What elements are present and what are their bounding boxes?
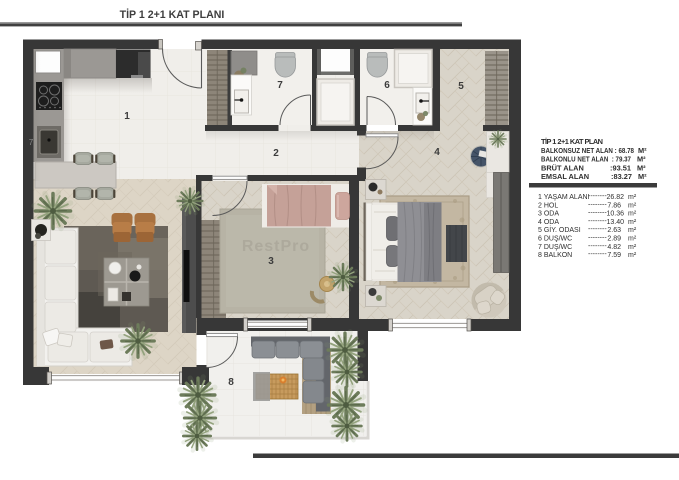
svg-text:--------: -------- bbox=[588, 218, 607, 225]
svg-text:TİP 1 2+1 KAT PLANI: TİP 1 2+1 KAT PLANI bbox=[120, 8, 225, 21]
svg-text:13.40: 13.40 bbox=[606, 219, 624, 226]
svg-text:m²: m² bbox=[628, 194, 637, 201]
svg-text:M²: M² bbox=[638, 146, 647, 155]
svg-text:--------: -------- bbox=[588, 243, 607, 250]
svg-text:7.86: 7.86 bbox=[607, 202, 621, 209]
svg-text:2: 2 bbox=[273, 148, 279, 159]
svg-text:m²: m² bbox=[628, 236, 637, 243]
svg-text:6 DUŞ/WC: 6 DUŞ/WC bbox=[538, 236, 572, 243]
svg-text:1 YAŞAM ALANI: 1 YAŞAM ALANI bbox=[538, 194, 590, 201]
svg-text:5: 5 bbox=[458, 81, 464, 92]
svg-text:26.82: 26.82 bbox=[606, 194, 624, 201]
svg-text:5 GİY. ODASI: 5 GİY. ODASI bbox=[538, 225, 581, 234]
svg-text:m²: m² bbox=[628, 227, 637, 234]
svg-text:2 HOL: 2 HOL bbox=[538, 202, 558, 209]
svg-text:8: 8 bbox=[228, 377, 234, 388]
svg-text:4: 4 bbox=[434, 147, 440, 158]
svg-text:BALKONLU NET ALAN : 79.37: BALKONLU NET ALAN : 79.37 bbox=[541, 155, 631, 164]
svg-text:BRÜT ALAN: BRÜT ALAN bbox=[541, 163, 584, 172]
svg-text:6: 6 bbox=[384, 80, 390, 91]
svg-text:m²: m² bbox=[628, 252, 637, 259]
svg-text:--------: -------- bbox=[588, 235, 607, 242]
svg-text:7 DUŞ/WC: 7 DUŞ/WC bbox=[538, 244, 572, 251]
svg-text:--------: -------- bbox=[588, 201, 607, 208]
svg-text:BALKONSUZ NET ALAN : 68.78: BALKONSUZ NET ALAN : 68.78 bbox=[541, 146, 634, 155]
svg-text:m²: m² bbox=[628, 211, 637, 218]
svg-text:m²: m² bbox=[628, 219, 637, 226]
svg-text:--------: -------- bbox=[588, 210, 607, 217]
svg-text:8 BALKON: 8 BALKON bbox=[538, 252, 572, 259]
svg-text:3 ODA: 3 ODA bbox=[538, 211, 559, 218]
svg-text::83.27: :83.27 bbox=[611, 172, 632, 181]
svg-text:m²: m² bbox=[628, 202, 637, 209]
svg-text:7.59: 7.59 bbox=[607, 252, 621, 259]
svg-text:1: 1 bbox=[124, 111, 130, 122]
svg-text:TİP 1 2+1 KAT PLAN: TİP 1 2+1 KAT PLAN bbox=[541, 137, 603, 146]
svg-text:m²: m² bbox=[628, 244, 637, 251]
svg-text:M²: M² bbox=[637, 155, 646, 164]
svg-text:7: 7 bbox=[29, 138, 34, 147]
svg-text:3: 3 bbox=[268, 256, 274, 267]
svg-text:--------: -------- bbox=[588, 251, 607, 258]
svg-text:2.89: 2.89 bbox=[607, 236, 621, 243]
svg-text:EMSAL ALAN: EMSAL ALAN bbox=[541, 172, 589, 181]
svg-text:--------: -------- bbox=[588, 193, 607, 200]
svg-text:--------: -------- bbox=[588, 226, 607, 233]
svg-text:4.82: 4.82 bbox=[607, 244, 621, 251]
svg-text:2.63: 2.63 bbox=[607, 227, 621, 234]
svg-text:7: 7 bbox=[277, 80, 283, 91]
svg-text:RestPro: RestPro bbox=[242, 238, 310, 255]
svg-text:M²: M² bbox=[638, 172, 647, 181]
svg-text:M²: M² bbox=[637, 163, 646, 172]
svg-text::93.51: :93.51 bbox=[610, 163, 631, 172]
svg-text:10.36: 10.36 bbox=[606, 211, 624, 218]
svg-text:4 ODA: 4 ODA bbox=[538, 219, 559, 226]
